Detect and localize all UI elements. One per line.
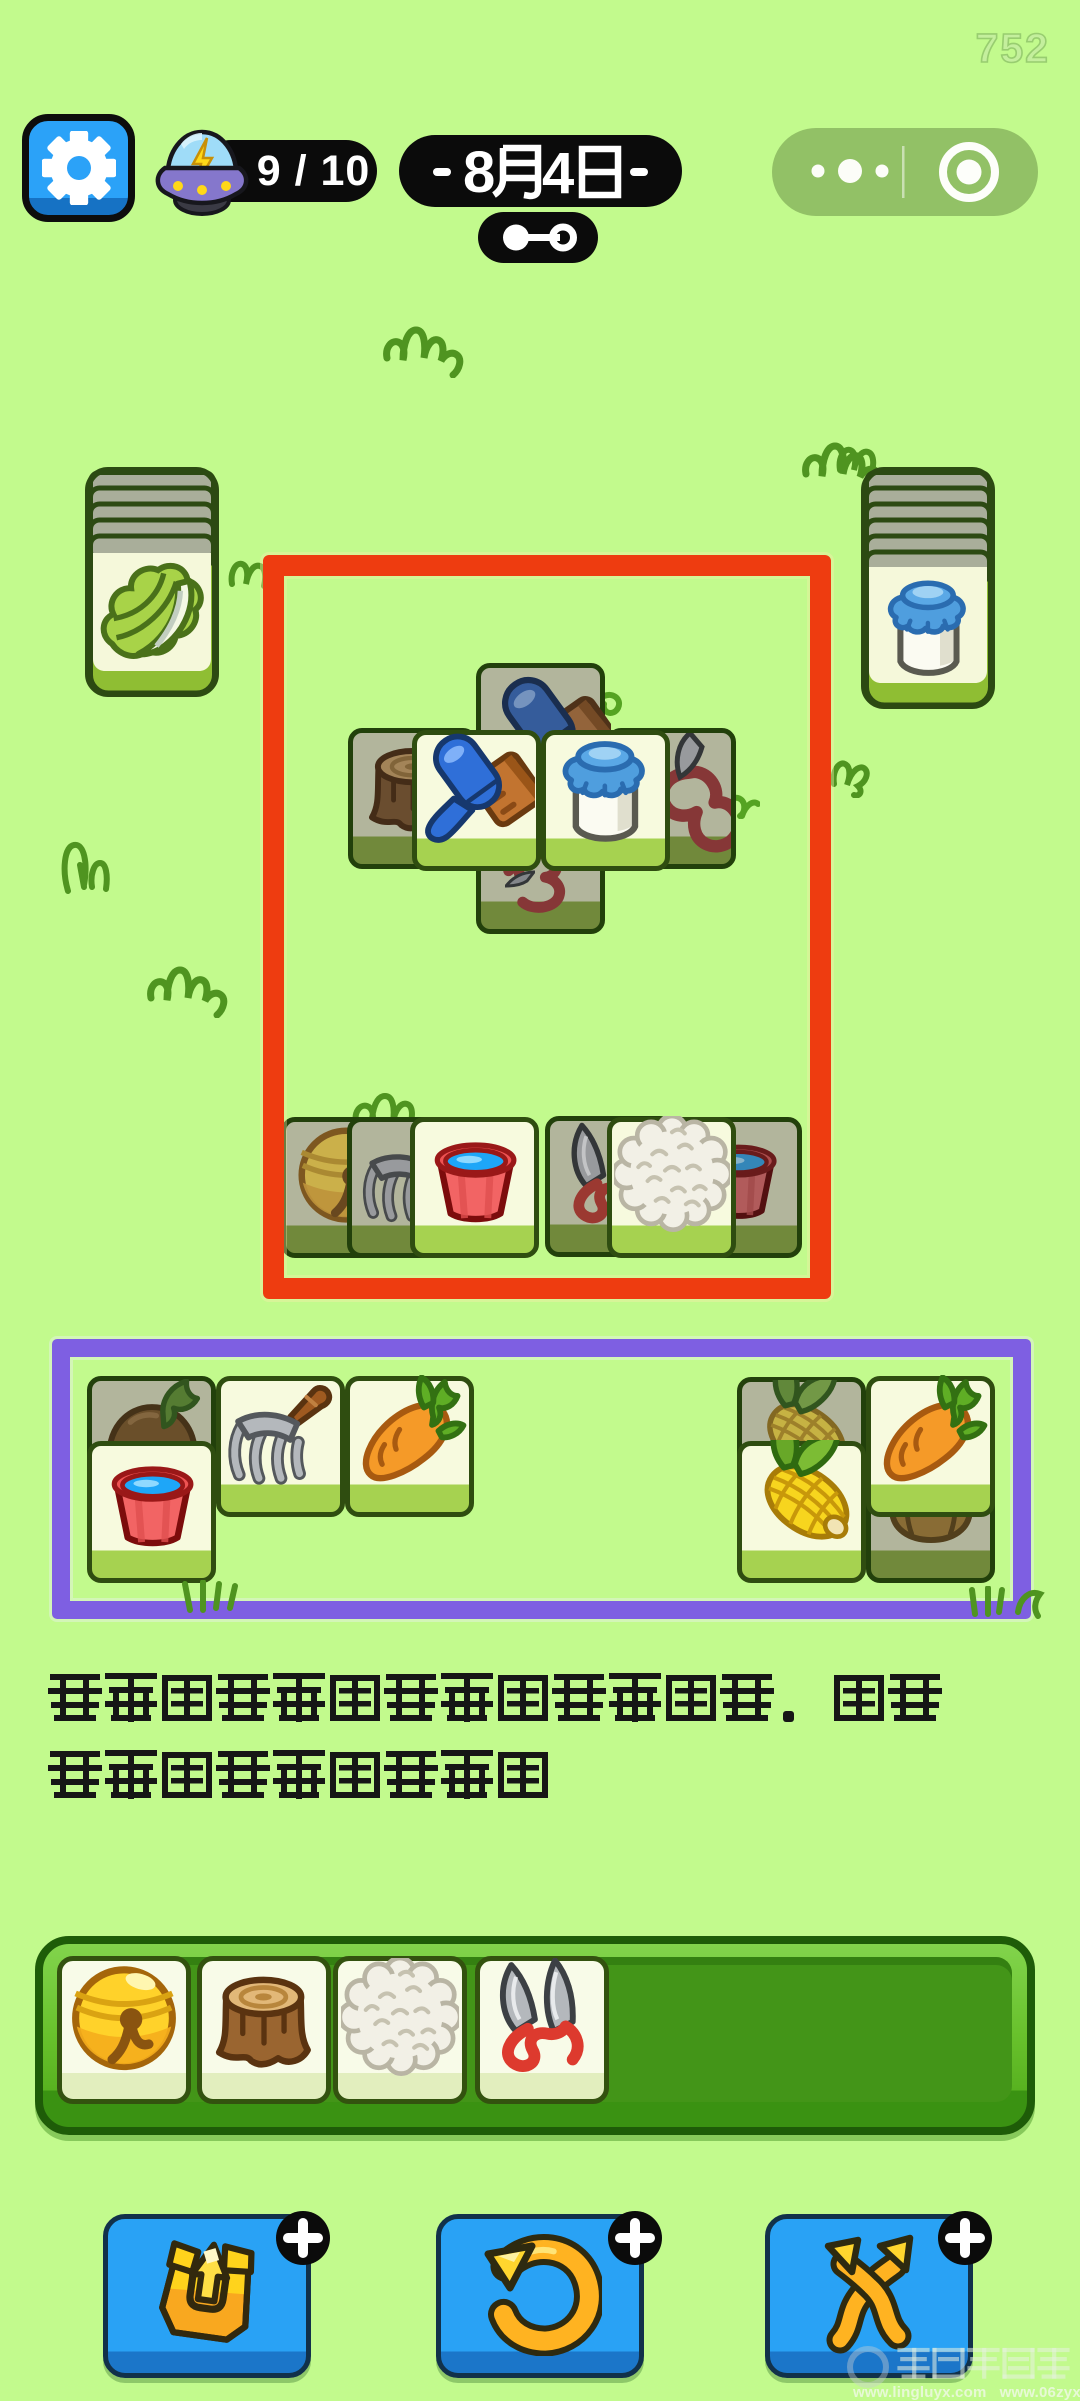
svg-text:4: 4 [542,141,574,206]
svg-text:8: 8 [463,140,495,205]
